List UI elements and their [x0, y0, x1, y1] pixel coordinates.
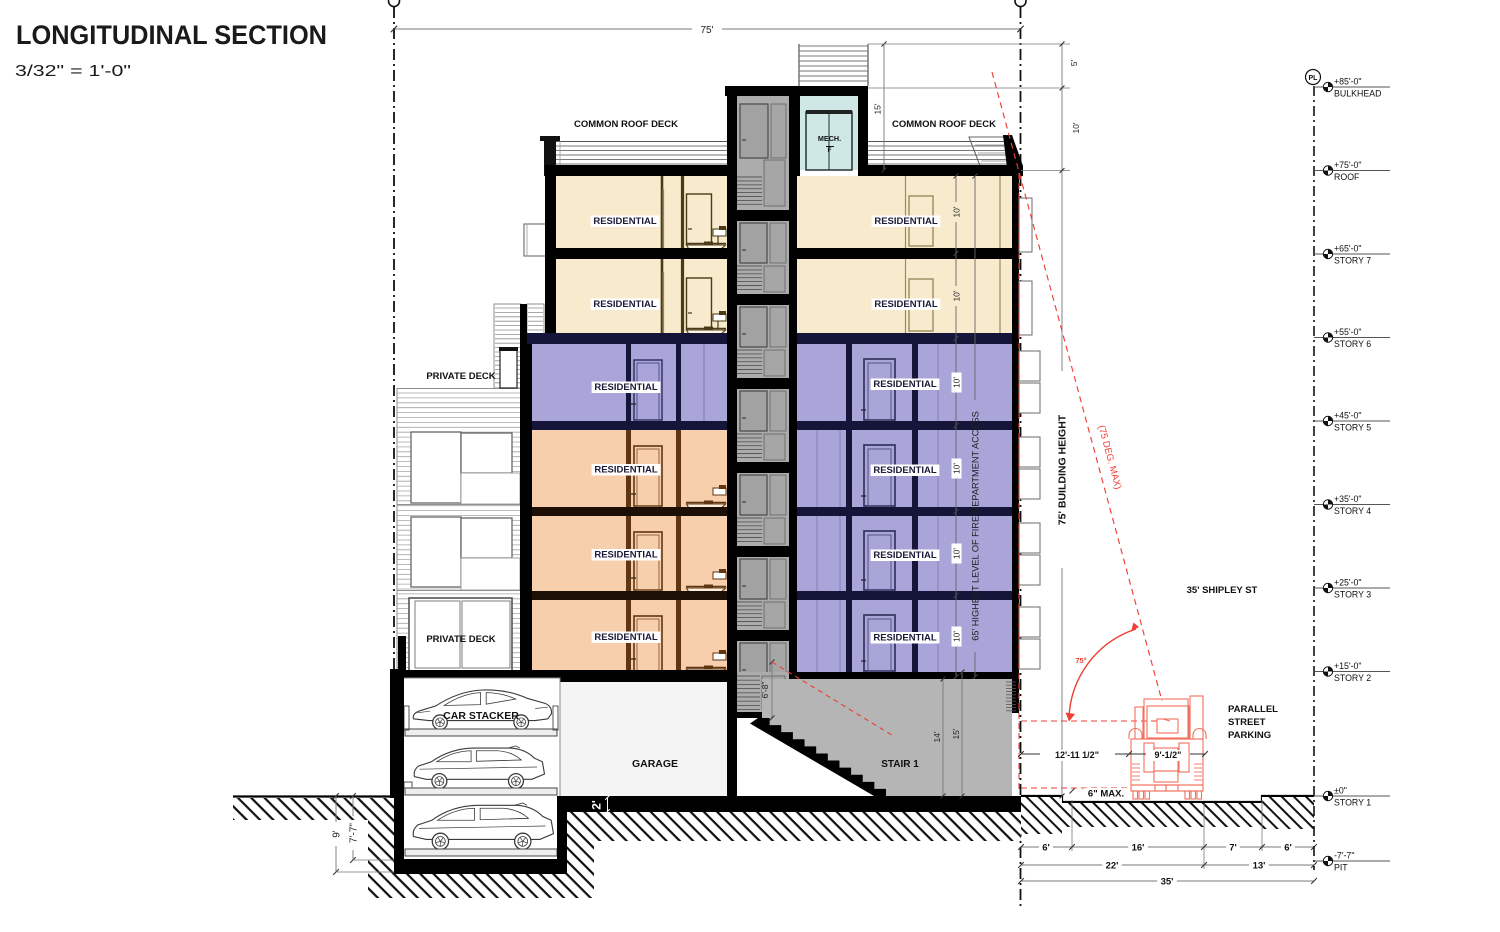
svg-text:PRIVATE DECK: PRIVATE DECK [426, 634, 495, 645]
svg-text:RESIDENTIAL: RESIDENTIAL [593, 299, 657, 310]
svg-text:10': 10' [952, 290, 962, 301]
svg-text:-7'-7": -7'-7" [1334, 851, 1354, 861]
svg-text:65' HIGHEST LEVEL OF FIRE DEPA: 65' HIGHEST LEVEL OF FIRE DEPARTMENT ACC… [971, 411, 981, 640]
svg-text:PIT: PIT [1334, 863, 1348, 873]
svg-text:7': 7' [1229, 843, 1237, 854]
svg-text:+25'-0": +25'-0" [1334, 578, 1362, 588]
svg-text:5': 5' [1069, 59, 1079, 66]
svg-text:STORY 5: STORY 5 [1334, 423, 1371, 433]
svg-text:9'-1/2": 9'-1/2" [1155, 750, 1182, 760]
svg-text:ROOF: ROOF [1334, 172, 1360, 182]
svg-text:15': 15' [951, 728, 961, 739]
svg-text:CAR STACKER: CAR STACKER [443, 710, 519, 722]
svg-text:F: F [828, 147, 832, 154]
svg-text:MECH.: MECH. [818, 134, 841, 143]
svg-text:RESIDENTIAL: RESIDENTIAL [594, 382, 658, 393]
svg-text:10': 10' [1071, 122, 1081, 133]
svg-text:STORY 6: STORY 6 [1334, 339, 1371, 349]
svg-text:RESIDENTIAL: RESIDENTIAL [873, 379, 937, 390]
svg-text:STORY 3: STORY 3 [1334, 590, 1371, 600]
svg-text:BULKHEAD: BULKHEAD [1334, 89, 1381, 99]
svg-text:10': 10' [952, 631, 962, 642]
svg-text:10': 10' [952, 206, 962, 217]
svg-text:35' SHIPLEY ST: 35' SHIPLEY ST [1187, 585, 1258, 596]
svg-text:7'-7": 7'-7" [349, 823, 360, 843]
svg-text:PRIVATE DECK: PRIVATE DECK [426, 371, 495, 382]
svg-text:6': 6' [1284, 843, 1292, 854]
svg-text:PARKING: PARKING [1228, 730, 1271, 741]
svg-text:RESIDENTIAL: RESIDENTIAL [873, 550, 937, 561]
svg-text:+65'-0": +65'-0" [1334, 244, 1362, 254]
svg-text:10': 10' [952, 463, 962, 474]
svg-text:75': 75' [700, 25, 713, 36]
svg-text:+15'-0": +15'-0" [1334, 661, 1362, 671]
svg-text:PARALLEL: PARALLEL [1228, 704, 1278, 715]
svg-text:3/32" = 1'-0": 3/32" = 1'-0" [15, 63, 131, 80]
svg-text:COMMON ROOF DECK: COMMON ROOF DECK [574, 119, 678, 130]
svg-text:75' BUILDING HEIGHT: 75' BUILDING HEIGHT [1057, 414, 1069, 525]
svg-text:STORY 4: STORY 4 [1334, 506, 1371, 516]
svg-text:STORY 7: STORY 7 [1334, 256, 1371, 266]
svg-text:STAIR 1: STAIR 1 [881, 759, 919, 770]
svg-text:+85'-0": +85'-0" [1334, 77, 1362, 87]
svg-text:RESIDENTIAL: RESIDENTIAL [874, 216, 938, 227]
svg-text:+35'-0": +35'-0" [1334, 494, 1362, 504]
svg-text:6': 6' [1042, 843, 1050, 854]
svg-text:2': 2' [590, 800, 604, 810]
svg-text:RESIDENTIAL: RESIDENTIAL [594, 465, 658, 476]
svg-text:RESIDENTIAL: RESIDENTIAL [593, 216, 657, 227]
svg-text:STREET: STREET [1228, 717, 1266, 728]
svg-text:12'-11 1/2": 12'-11 1/2" [1055, 750, 1099, 760]
svg-text:6'-8": 6'-8" [760, 682, 770, 699]
svg-text:35': 35' [1161, 877, 1174, 888]
svg-text:PL: PL [1309, 75, 1319, 82]
svg-text:14': 14' [932, 731, 942, 742]
svg-text:RESIDENTIAL: RESIDENTIAL [594, 632, 658, 643]
svg-text:22': 22' [1106, 861, 1119, 872]
svg-text:±0": ±0" [1334, 786, 1347, 796]
svg-text:10': 10' [952, 548, 962, 559]
svg-text:+55'-0": +55'-0" [1334, 327, 1362, 337]
svg-text:9': 9' [332, 830, 343, 838]
svg-text:STORY 1: STORY 1 [1334, 798, 1371, 808]
svg-text:RESIDENTIAL: RESIDENTIAL [873, 633, 937, 644]
svg-text:15': 15' [873, 103, 883, 114]
svg-text:RESIDENTIAL: RESIDENTIAL [874, 299, 938, 310]
svg-text:+75'-0": +75'-0" [1334, 160, 1362, 170]
svg-text:RESIDENTIAL: RESIDENTIAL [594, 550, 658, 561]
svg-text:STORY 2: STORY 2 [1334, 673, 1371, 683]
svg-text:COMMON ROOF DECK: COMMON ROOF DECK [892, 119, 996, 130]
svg-text:LONGITUDINAL SECTION: LONGITUDINAL SECTION [16, 20, 327, 50]
svg-text:GARAGE: GARAGE [632, 758, 678, 770]
svg-text:10': 10' [952, 377, 962, 388]
svg-text:6" MAX.: 6" MAX. [1088, 789, 1124, 800]
svg-text:RESIDENTIAL: RESIDENTIAL [873, 465, 937, 476]
svg-text:75°: 75° [1075, 656, 1086, 665]
svg-text:+45'-0": +45'-0" [1334, 411, 1362, 421]
svg-text:13': 13' [1253, 861, 1266, 872]
svg-text:16': 16' [1132, 843, 1145, 854]
